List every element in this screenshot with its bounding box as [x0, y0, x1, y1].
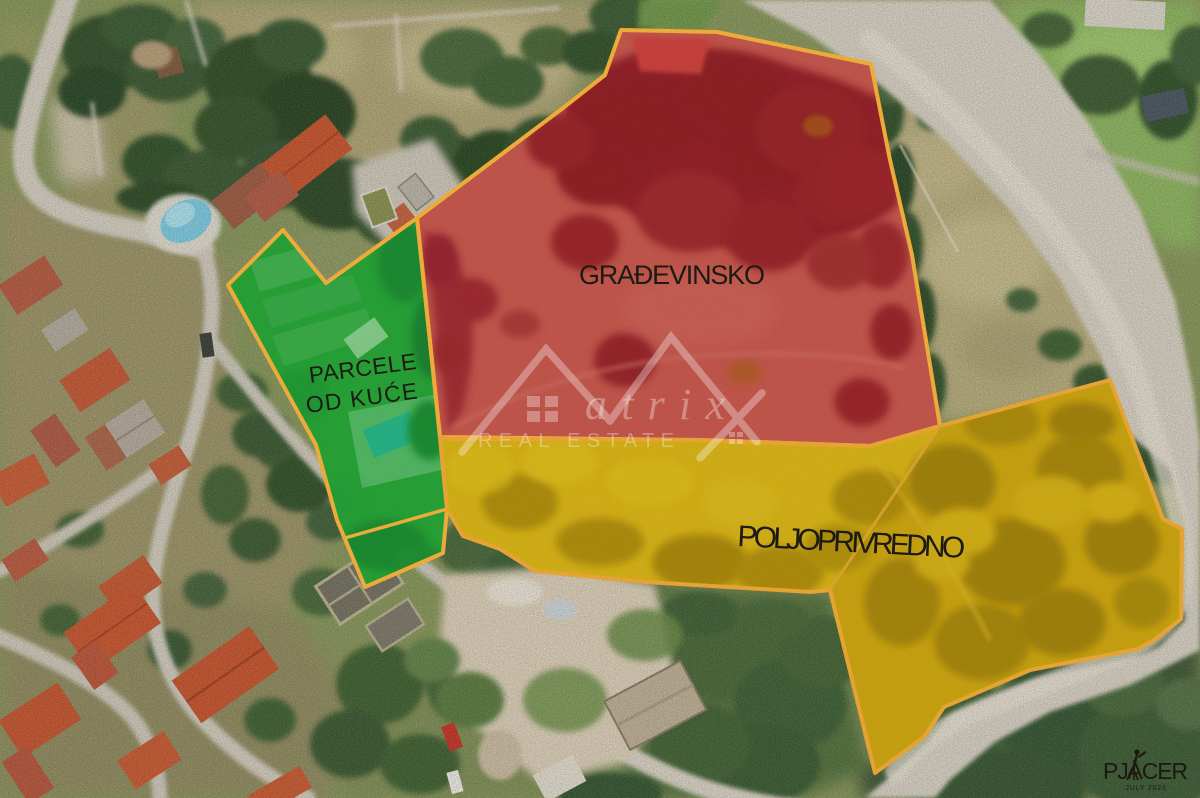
svg-text:REAL ESTATE: REAL ESTATE — [478, 430, 683, 452]
svg-text:PJACER: PJACER — [1103, 758, 1190, 784]
svg-text:JULY 2023: JULY 2023 — [1125, 785, 1166, 792]
svg-text:GRAĐEVINSKO: GRAĐEVINSKO — [579, 260, 765, 290]
